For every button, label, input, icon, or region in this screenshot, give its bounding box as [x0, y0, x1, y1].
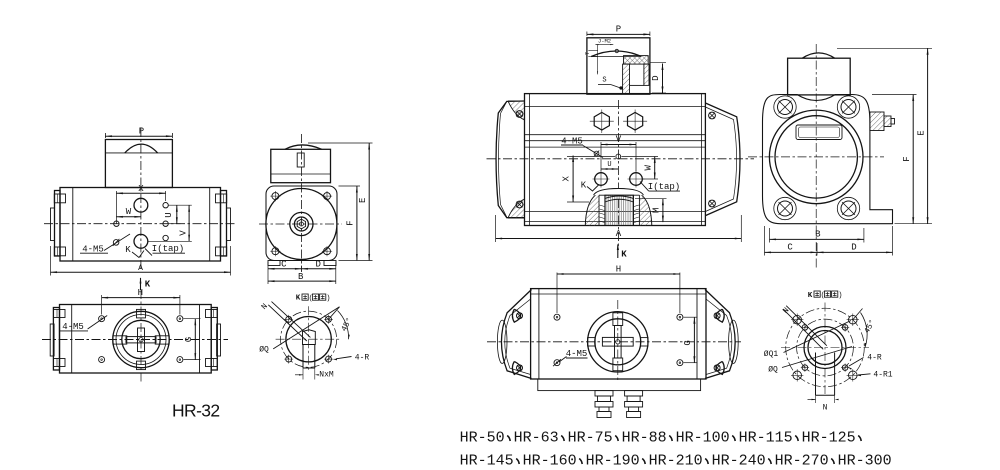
svg-text:K: K — [621, 250, 627, 260]
svg-text:): ) — [838, 292, 842, 300]
svg-text:K: K — [125, 245, 131, 255]
svg-text:4-R1: 4-R1 — [873, 371, 892, 380]
svg-text:HR-88: HR-88 — [622, 430, 667, 447]
svg-text:HR-100: HR-100 — [676, 430, 730, 447]
svg-text:HR-300: HR-300 — [838, 453, 892, 470]
svg-text:U: U — [607, 161, 611, 169]
svg-text:HR-32: HR-32 — [172, 401, 220, 421]
svg-text:K: K — [296, 295, 301, 303]
svg-text:HR-63: HR-63 — [514, 430, 559, 447]
svg-text:D: D — [651, 75, 661, 80]
svg-text:W: W — [126, 207, 132, 217]
svg-text:ØQ1: ØQ1 — [764, 350, 779, 359]
svg-text:NxM: NxM — [319, 371, 334, 380]
svg-text:HR-125: HR-125 — [802, 430, 856, 447]
svg-text:D: D — [851, 243, 856, 253]
svg-text:X: X — [138, 184, 144, 194]
svg-text:HR-160: HR-160 — [523, 453, 577, 470]
svg-text:): ) — [326, 295, 330, 303]
svg-text:M: M — [652, 208, 662, 213]
svg-text:I(tap): I(tap) — [152, 244, 184, 254]
svg-text:J-M2: J-M2 — [598, 38, 611, 45]
svg-text:K: K — [145, 280, 151, 290]
svg-text:A: A — [138, 264, 143, 273]
svg-text:S: S — [602, 77, 606, 85]
svg-text:H: H — [138, 288, 143, 298]
svg-text:U: U — [164, 212, 174, 217]
svg-text:HR-270: HR-270 — [775, 453, 829, 470]
svg-text:E: E — [916, 130, 926, 135]
svg-text:E: E — [358, 198, 368, 203]
svg-text:H: H — [616, 265, 621, 275]
svg-text:HR-210: HR-210 — [649, 453, 703, 470]
svg-text:HR-50: HR-50 — [460, 430, 505, 447]
svg-text:B: B — [298, 272, 304, 282]
svg-text:HR-115: HR-115 — [739, 430, 793, 447]
svg-text:F: F — [902, 156, 912, 161]
svg-text:A: A — [616, 229, 622, 239]
svg-text:HR-190: HR-190 — [586, 453, 640, 470]
svg-text:P: P — [139, 127, 144, 137]
svg-text:P: P — [616, 25, 621, 35]
svg-text:V: V — [178, 230, 188, 236]
svg-text:W: W — [644, 165, 654, 171]
svg-text:G: G — [184, 337, 194, 342]
svg-text:4-M5: 4-M5 — [566, 349, 588, 359]
svg-text:K: K — [808, 292, 813, 300]
svg-text:4-R: 4-R — [355, 354, 370, 363]
svg-text:X: X — [562, 176, 572, 182]
svg-text:N: N — [823, 404, 828, 413]
svg-text:4-R: 4-R — [867, 354, 882, 363]
svg-text:HR-75: HR-75 — [568, 430, 613, 447]
svg-text:ØQ: ØQ — [768, 366, 778, 375]
svg-text:F: F — [346, 220, 356, 225]
svg-text:C: C — [787, 243, 793, 253]
svg-text:V: V — [616, 135, 622, 145]
svg-text:I(tap): I(tap) — [648, 182, 680, 192]
svg-text:B: B — [815, 230, 821, 240]
svg-text:HR-240: HR-240 — [712, 453, 766, 470]
svg-text:HR-145: HR-145 — [460, 453, 514, 470]
svg-text:C: C — [281, 259, 287, 269]
svg-text:K: K — [581, 181, 587, 191]
svg-text:G: G — [683, 340, 693, 345]
svg-text:ØQ: ØQ — [259, 346, 269, 355]
svg-text:D: D — [315, 259, 320, 269]
